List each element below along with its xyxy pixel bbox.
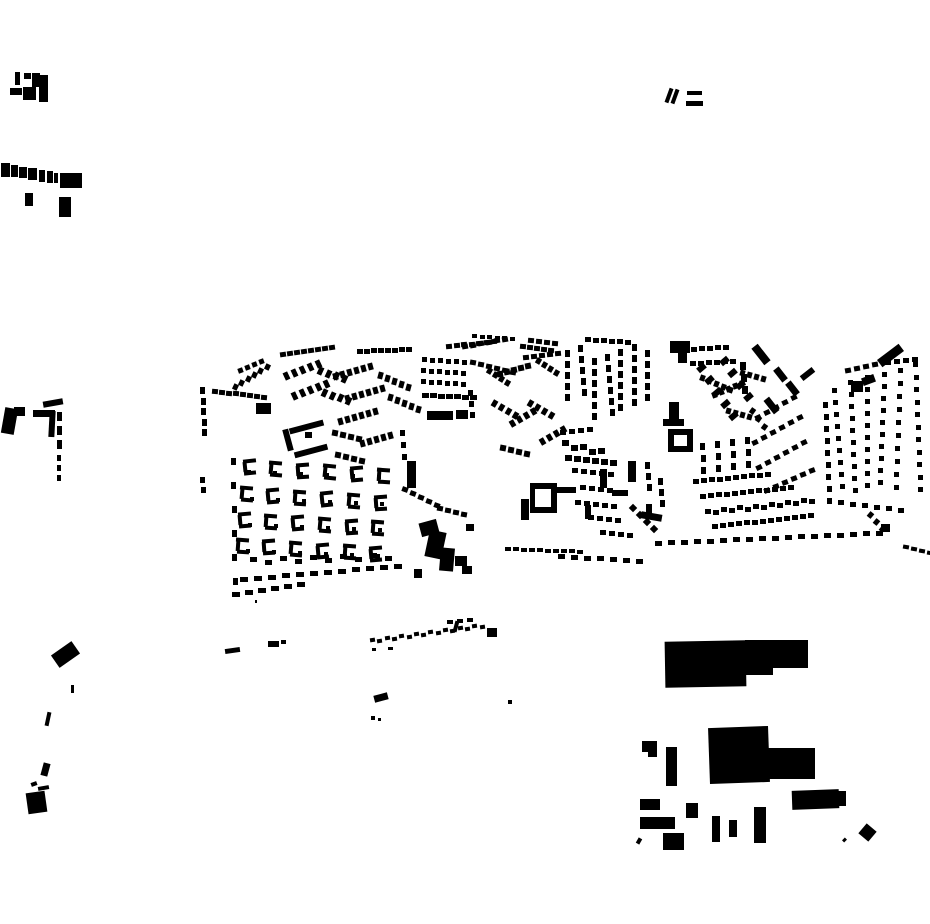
building-footprint	[284, 584, 292, 589]
building-footprint	[730, 439, 735, 446]
building-footprint	[720, 523, 726, 528]
building-footprint	[853, 488, 858, 493]
building-footprint	[701, 455, 706, 462]
building-footprint	[60, 173, 82, 188]
building-footprint	[824, 533, 831, 538]
building-footprint	[602, 503, 608, 508]
building-footprint	[645, 462, 650, 469]
building-footprint	[879, 456, 884, 461]
building-footprint	[716, 492, 722, 497]
building-footprint	[767, 748, 815, 779]
building-footprint	[850, 416, 855, 421]
building-footprint	[878, 468, 883, 473]
building-footprint	[721, 507, 727, 512]
building-footprint	[646, 504, 652, 515]
building-footprint	[265, 526, 277, 531]
building-footprint	[513, 547, 519, 551]
building-footprint	[373, 435, 380, 443]
building-footprint	[406, 635, 412, 640]
building-footprint	[838, 500, 844, 505]
building-footprint	[337, 417, 344, 425]
building-footprint	[903, 358, 909, 363]
building-footprint	[472, 334, 477, 338]
building-footprint	[456, 410, 468, 419]
building-footprint	[588, 515, 594, 520]
building-footprint	[646, 473, 651, 480]
building-footprint	[863, 531, 870, 536]
building-footprint	[715, 441, 720, 448]
building-footprint	[502, 336, 507, 340]
building-footprint	[528, 338, 534, 344]
building-footprint	[768, 518, 774, 523]
building-footprint	[865, 483, 870, 488]
building-footprint	[650, 525, 658, 533]
building-footprint	[763, 487, 770, 494]
building-footprint	[840, 484, 845, 489]
building-footprint	[525, 363, 532, 370]
building-footprint	[825, 438, 830, 444]
building-footprint	[575, 500, 581, 505]
building-footprint	[731, 451, 736, 458]
building-footprint	[380, 565, 388, 570]
building-footprint	[584, 556, 591, 561]
building-footprint	[470, 412, 475, 418]
building-footprint	[660, 500, 665, 507]
building-footprint	[504, 369, 511, 376]
building-footprint	[237, 550, 249, 555]
building-footprint	[849, 392, 854, 397]
building-footprint	[745, 664, 773, 675]
building-footprint	[645, 383, 650, 390]
figure-ground-map	[0, 0, 930, 924]
building-footprint	[446, 344, 452, 350]
building-footprint	[645, 350, 650, 357]
building-footprint	[592, 358, 597, 365]
building-footprint	[358, 390, 365, 398]
building-footprint	[894, 359, 900, 364]
building-footprint	[57, 475, 61, 481]
building-footprint	[839, 472, 844, 477]
building-footprint	[618, 404, 623, 411]
building-footprint	[487, 628, 497, 637]
building-footprint	[292, 526, 304, 531]
building-footprint	[690, 361, 696, 366]
building-footprint	[755, 415, 763, 423]
building-footprint	[598, 448, 605, 454]
building-footprint	[724, 492, 730, 497]
building-footprint	[580, 444, 587, 450]
building-footprint	[898, 381, 903, 386]
building-footprint	[360, 364, 367, 372]
building-footprint	[796, 414, 804, 421]
building-footprint	[356, 436, 363, 443]
building-footprint	[578, 428, 584, 433]
building-footprint	[865, 447, 870, 452]
building-footprint	[545, 549, 551, 553]
building-footprint	[387, 431, 394, 439]
building-footprint	[790, 475, 797, 482]
building-footprint	[232, 530, 237, 537]
building-footprint	[897, 394, 902, 399]
building-footprint	[378, 348, 384, 353]
building-footprint	[421, 633, 427, 638]
building-footprint	[799, 471, 806, 478]
building-footprint	[200, 477, 205, 483]
building-footprint	[59, 197, 71, 217]
building-footprint	[562, 440, 569, 446]
building-footprint	[453, 381, 458, 386]
building-footprint	[536, 339, 542, 345]
building-footprint	[310, 571, 318, 576]
building-footprint	[516, 449, 523, 456]
building-footprint	[240, 392, 246, 398]
building-footprint	[398, 380, 405, 388]
building-footprint	[378, 718, 381, 721]
building-footprint	[445, 508, 452, 514]
building-footprint	[808, 513, 814, 518]
building-footprint	[728, 522, 734, 527]
building-footprint	[547, 352, 553, 358]
building-footprint	[290, 552, 302, 557]
building-footprint	[201, 487, 206, 493]
building-footprint	[686, 803, 698, 818]
building-footprint	[25, 193, 33, 206]
building-footprint	[521, 548, 527, 552]
building-footprint	[48, 411, 55, 437]
building-footprint	[445, 381, 450, 386]
building-footprint	[54, 173, 58, 183]
building-footprint	[729, 820, 737, 837]
building-footprint	[792, 515, 798, 520]
building-footprint	[600, 530, 606, 535]
building-footprint	[453, 510, 460, 516]
building-footprint	[344, 415, 351, 423]
building-footprint	[454, 359, 459, 364]
building-footprint	[322, 346, 329, 352]
building-footprint	[321, 502, 333, 507]
building-footprint	[919, 549, 926, 554]
building-footprint	[415, 405, 422, 413]
building-footprint	[470, 360, 477, 366]
building-footprint	[470, 342, 477, 348]
building-footprint	[739, 411, 745, 418]
building-footprint	[592, 391, 597, 398]
building-footprint	[329, 391, 337, 400]
building-footprint	[592, 369, 597, 376]
building-footprint	[756, 488, 762, 493]
building-footprint	[428, 630, 434, 635]
building-footprint	[640, 799, 660, 810]
building-footprint	[351, 477, 363, 482]
building-footprint	[57, 426, 62, 435]
building-footprint	[231, 458, 236, 465]
building-footprint	[894, 472, 899, 477]
building-footprint	[885, 360, 891, 365]
building-footprint	[761, 505, 767, 510]
building-footprint	[655, 541, 662, 546]
building-footprint	[903, 545, 910, 550]
building-footprint	[282, 573, 290, 578]
building-footprint	[897, 407, 902, 412]
building-footprint	[466, 524, 474, 531]
building-footprint	[645, 361, 650, 368]
building-footprint	[417, 494, 424, 501]
building-footprint	[233, 578, 238, 585]
building-footprint	[878, 480, 883, 485]
building-footprint	[47, 171, 53, 183]
building-footprint	[346, 531, 358, 536]
building-footprint	[552, 341, 558, 347]
building-footprint	[571, 445, 578, 451]
building-footprint	[577, 550, 583, 554]
building-footprint	[632, 388, 637, 395]
building-footprint	[663, 833, 684, 850]
building-footprint	[848, 380, 853, 385]
building-footprint	[824, 426, 829, 432]
courtyard-cutout	[535, 489, 551, 507]
building-footprint	[394, 564, 402, 569]
building-footprint	[348, 434, 355, 441]
building-footprint	[842, 838, 847, 843]
building-footprint	[579, 356, 584, 363]
building-footprint	[438, 358, 443, 363]
building-footprint	[251, 361, 257, 367]
building-footprint	[548, 411, 556, 420]
building-footprint	[315, 382, 323, 391]
building-footprint	[886, 506, 892, 511]
building-footprint	[294, 444, 328, 459]
building-footprint	[716, 465, 721, 472]
building-footprint	[608, 472, 614, 477]
building-footprint	[445, 370, 450, 375]
building-footprint	[912, 357, 918, 362]
building-footprint	[553, 369, 560, 377]
building-footprint	[244, 470, 256, 475]
building-footprint	[683, 347, 689, 352]
building-footprint	[601, 459, 608, 465]
building-footprint	[373, 692, 388, 702]
building-footprint	[406, 347, 412, 352]
building-footprint	[751, 344, 770, 365]
building-footprint	[867, 511, 875, 519]
building-footprint	[686, 101, 703, 106]
building-footprint	[668, 540, 675, 545]
building-footprint	[740, 362, 746, 370]
building-footprint	[200, 387, 205, 394]
building-footprint	[254, 394, 260, 400]
building-footprint	[319, 528, 331, 533]
building-footprint	[647, 484, 652, 491]
building-footprint	[755, 464, 763, 471]
building-footprint	[555, 351, 561, 357]
building-footprint	[263, 363, 270, 371]
building-footprint	[462, 566, 472, 574]
building-footprint	[881, 396, 886, 401]
building-footprint	[694, 539, 701, 544]
building-footprint	[409, 490, 416, 497]
building-footprint	[30, 781, 37, 787]
building-footprint	[343, 454, 350, 461]
building-footprint	[527, 345, 533, 351]
building-footprint	[505, 407, 513, 416]
building-footprint	[421, 379, 426, 384]
building-footprint	[487, 335, 492, 339]
building-footprint	[427, 411, 453, 420]
building-footprint	[57, 465, 61, 471]
building-footprint	[553, 549, 559, 553]
building-footprint	[569, 549, 575, 553]
building-footprint	[297, 582, 305, 587]
building-footprint	[23, 87, 36, 100]
building-footprint	[632, 366, 637, 373]
building-footprint	[498, 403, 506, 412]
building-footprint	[524, 451, 531, 458]
building-footprint	[372, 532, 384, 537]
courtyard-cutout	[674, 435, 687, 446]
building-footprint	[254, 576, 262, 581]
building-footprint	[720, 538, 727, 543]
building-footprint	[632, 344, 637, 351]
building-footprint	[716, 453, 721, 460]
building-footprint	[593, 502, 599, 507]
building-footprint	[854, 366, 861, 372]
building-footprint	[270, 472, 282, 477]
building-footprint	[520, 344, 526, 350]
building-footprint	[268, 641, 279, 647]
building-footprint	[377, 639, 383, 644]
building-footprint	[580, 485, 586, 490]
building-footprint	[461, 512, 468, 518]
building-footprint	[880, 420, 885, 425]
building-footprint	[753, 373, 759, 380]
building-footprint	[392, 348, 398, 353]
building-footprint	[329, 345, 336, 351]
building-footprint	[800, 514, 806, 519]
building-footprint	[11, 165, 18, 177]
building-footprint	[561, 549, 567, 553]
building-footprint	[332, 430, 339, 437]
building-footprint	[708, 493, 714, 498]
building-footprint	[787, 419, 795, 426]
building-footprint	[746, 449, 751, 456]
building-footprint	[851, 452, 856, 457]
building-footprint	[645, 394, 650, 401]
building-footprint	[258, 588, 266, 593]
building-footprint	[617, 339, 623, 344]
building-footprint	[623, 558, 630, 563]
building-footprint	[798, 534, 805, 539]
building-footprint	[757, 473, 763, 478]
building-footprint	[509, 419, 517, 428]
building-footprint	[583, 457, 590, 463]
building-footprint	[255, 600, 257, 603]
building-footprint	[429, 380, 434, 385]
building-footprint	[461, 382, 466, 387]
building-footprint	[339, 370, 346, 378]
building-footprint	[523, 355, 529, 361]
building-footprint	[701, 467, 706, 474]
building-footprint	[863, 364, 870, 370]
building-footprint	[880, 432, 885, 437]
building-footprint	[250, 557, 257, 562]
building-footprint	[835, 424, 840, 429]
building-footprint	[618, 532, 624, 537]
building-footprint	[865, 423, 870, 428]
building-footprint	[491, 399, 499, 408]
building-footprint	[915, 400, 920, 405]
building-footprint	[366, 566, 374, 571]
building-footprint	[226, 390, 232, 396]
building-footprint	[372, 386, 379, 394]
building-footprint	[850, 428, 855, 433]
building-footprint	[19, 167, 27, 178]
building-footprint	[447, 620, 453, 624]
building-footprint	[201, 408, 206, 415]
building-footprint	[773, 454, 781, 461]
building-footprint	[385, 556, 392, 561]
building-footprint	[28, 168, 37, 180]
building-footprint	[202, 419, 207, 426]
building-footprint	[581, 378, 586, 385]
building-footprint	[701, 478, 707, 483]
building-footprint	[618, 349, 623, 356]
building-footprint	[384, 636, 390, 641]
building-footprint	[733, 475, 739, 480]
building-footprint	[352, 567, 360, 572]
building-footprint	[606, 517, 612, 522]
building-footprint	[529, 548, 535, 552]
building-footprint	[895, 459, 900, 464]
building-footprint	[478, 362, 485, 368]
building-footprint	[478, 341, 485, 347]
building-footprint	[881, 408, 886, 413]
building-footprint	[457, 619, 463, 623]
building-footprint	[261, 394, 267, 400]
building-footprint	[640, 817, 675, 829]
building-footprint	[687, 91, 702, 95]
building-footprint	[384, 374, 391, 382]
building-footprint	[10, 88, 22, 95]
building-footprint	[609, 339, 615, 344]
building-footprint	[366, 437, 373, 445]
building-footprint	[759, 536, 766, 541]
building-footprint	[392, 637, 398, 642]
building-footprint	[785, 535, 792, 540]
building-footprint	[648, 751, 657, 757]
building-footprint	[534, 346, 540, 352]
building-footprint	[462, 360, 467, 365]
building-footprint	[592, 380, 597, 387]
building-footprint	[372, 648, 376, 651]
building-footprint	[777, 503, 783, 508]
building-footprint	[280, 556, 287, 561]
building-footprint	[782, 449, 790, 456]
building-footprint	[372, 407, 379, 415]
building-footprint	[837, 533, 844, 538]
building-footprint	[659, 489, 664, 496]
building-footprint	[539, 353, 545, 359]
building-footprint	[537, 548, 543, 552]
building-footprint	[407, 461, 416, 488]
building-footprint	[773, 366, 788, 382]
building-footprint	[71, 685, 74, 693]
building-footprint	[772, 536, 779, 541]
building-footprint	[399, 634, 405, 639]
building-footprint	[858, 823, 876, 841]
building-footprint	[219, 390, 225, 396]
building-footprint	[587, 427, 593, 432]
building-footprint	[916, 437, 921, 442]
